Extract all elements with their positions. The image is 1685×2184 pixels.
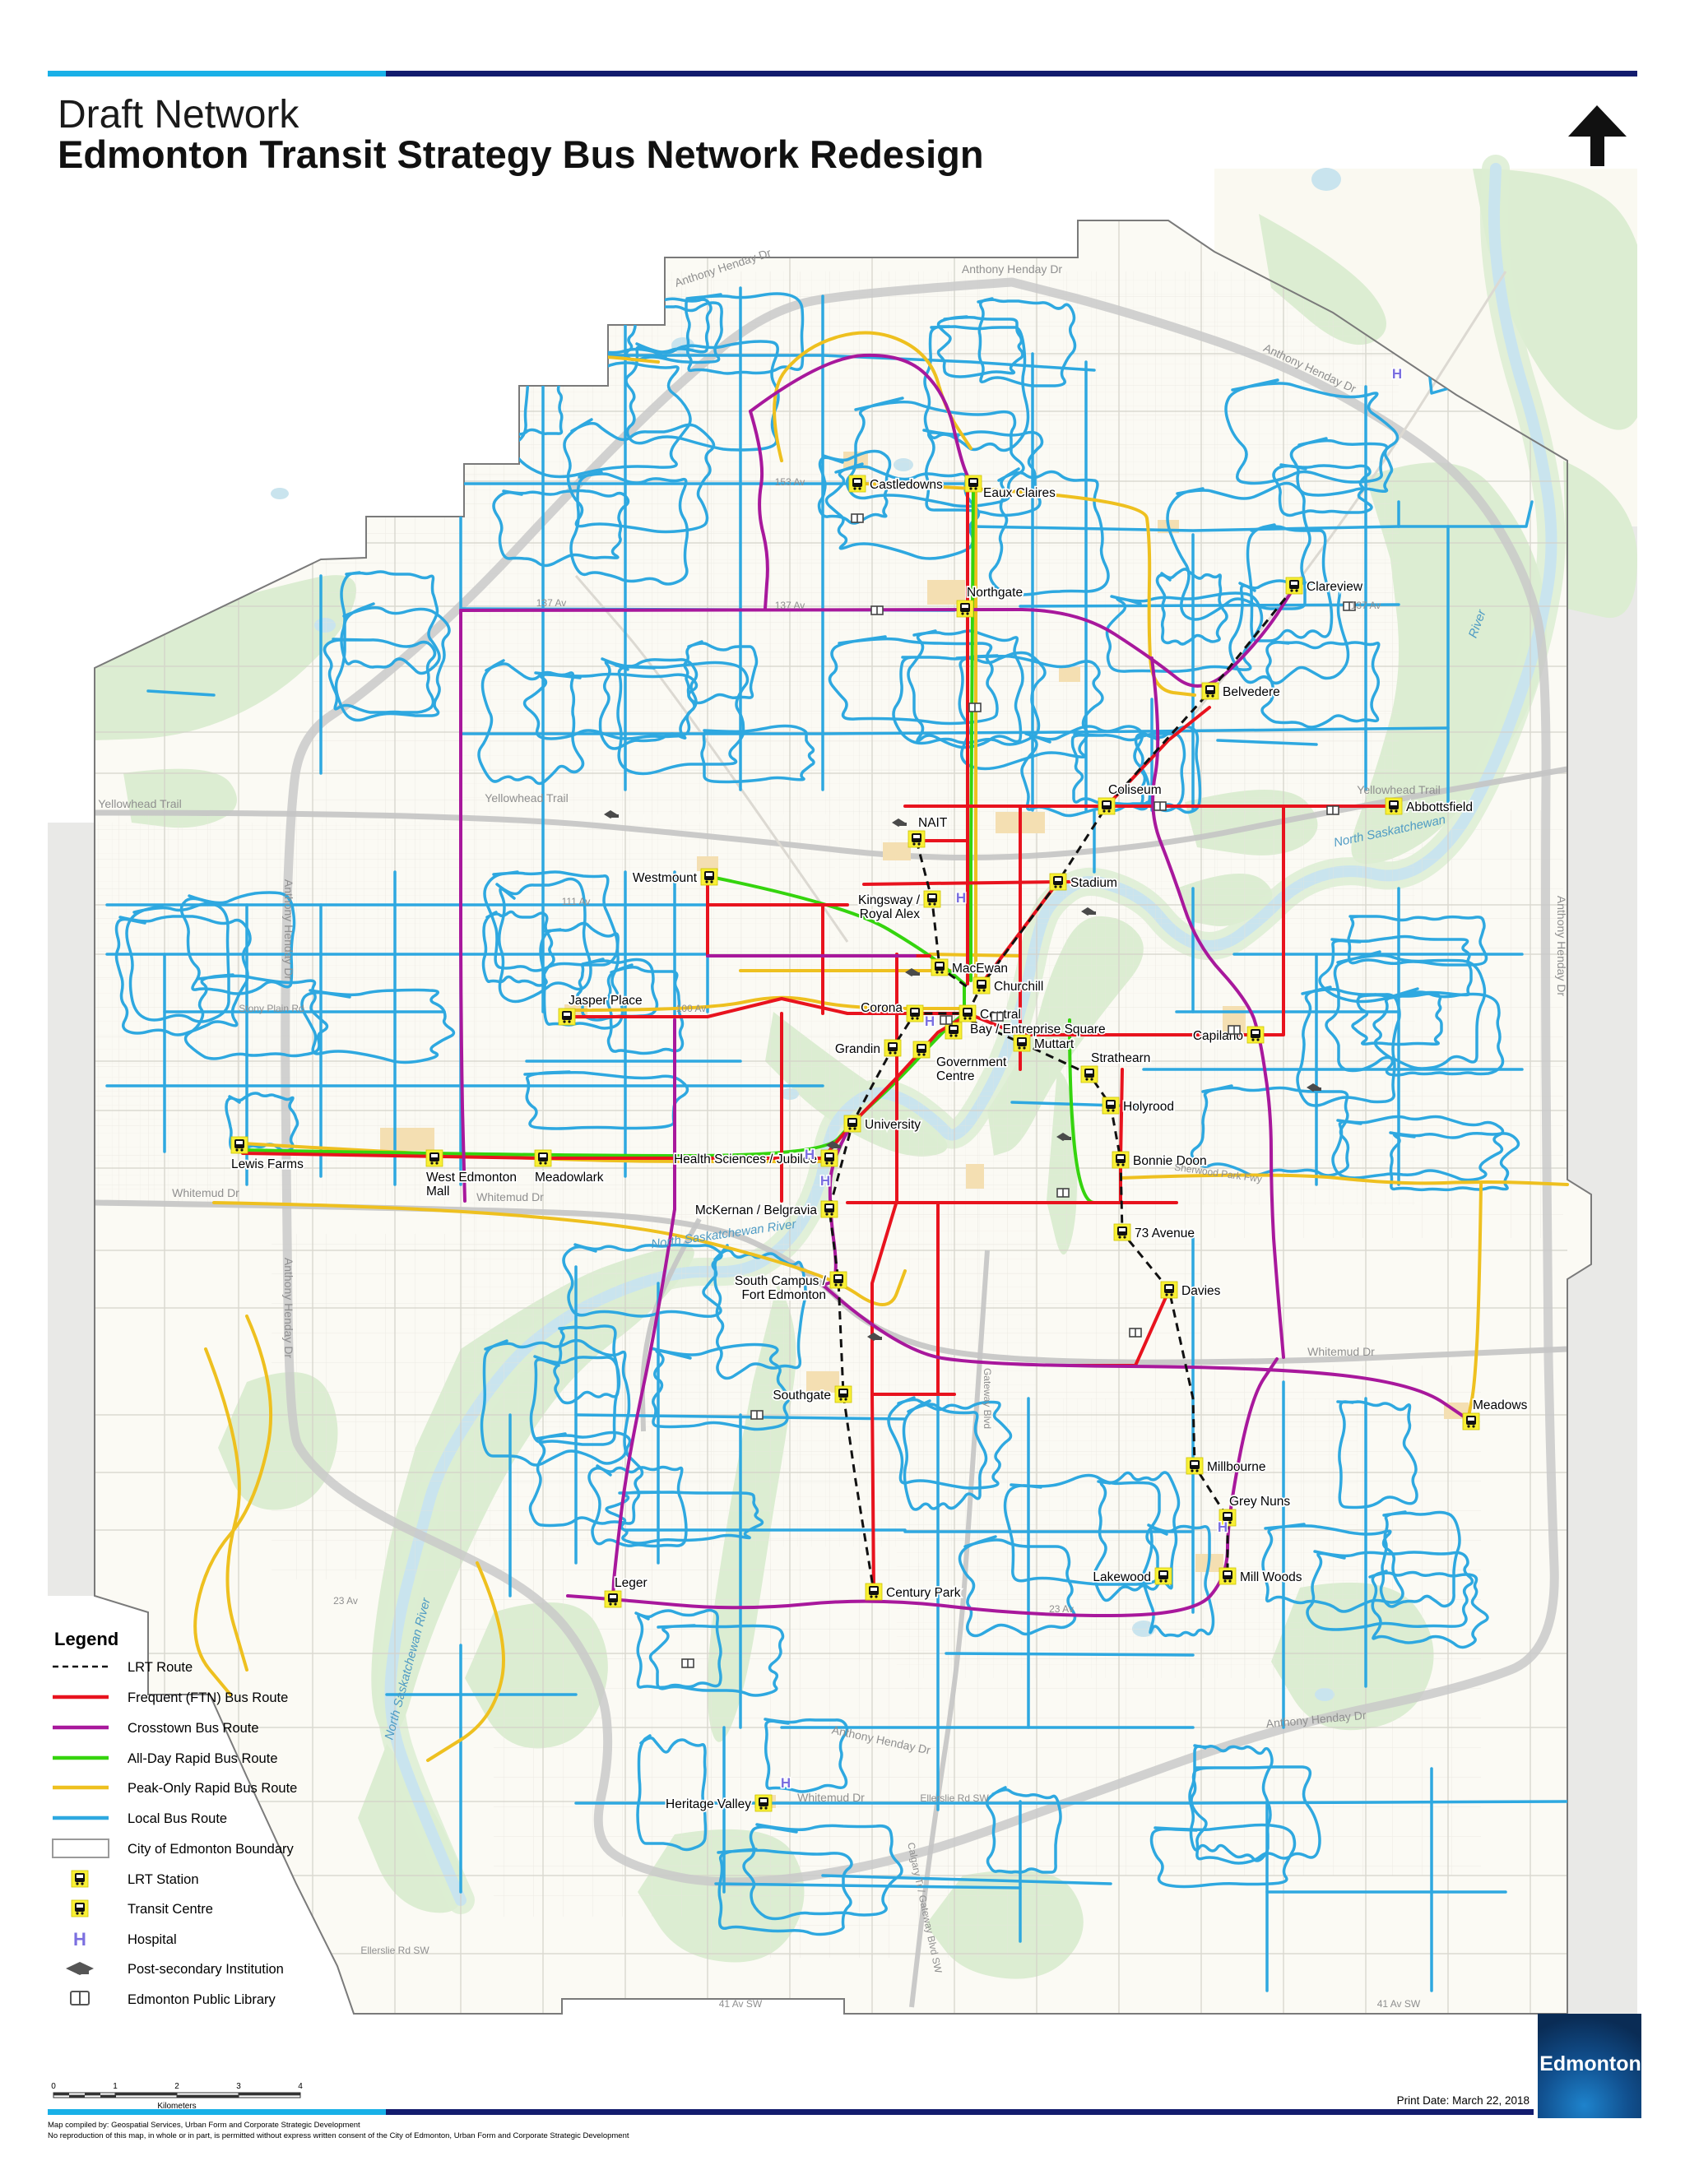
svg-text:0: 0 bbox=[51, 2082, 56, 2091]
svg-text:Meadowlark: Meadowlark bbox=[535, 1171, 604, 1185]
svg-text:4: 4 bbox=[298, 2082, 303, 2091]
svg-text:Southgate: Southgate bbox=[773, 1389, 831, 1403]
svg-text:H: H bbox=[805, 1147, 815, 1162]
svg-text:NAIT: NAIT bbox=[918, 816, 948, 830]
svg-text:Meadows: Meadows bbox=[1473, 1398, 1528, 1412]
svg-text:73 Avenue: 73 Avenue bbox=[1135, 1226, 1195, 1240]
svg-text:H: H bbox=[820, 1173, 830, 1189]
svg-text:Leger: Leger bbox=[615, 1576, 648, 1590]
svg-text:All-Day Rapid Bus Route: All-Day Rapid Bus Route bbox=[128, 1751, 278, 1766]
svg-text:Yellowhead Trail: Yellowhead Trail bbox=[1357, 783, 1440, 796]
svg-text:Gateway Blvd: Gateway Blvd bbox=[982, 1368, 993, 1429]
svg-text:Edmonton Transit Strategy Bus: Edmonton Transit Strategy Bus Network Re… bbox=[58, 132, 984, 176]
svg-text:Kingsway /Royal Alex: Kingsway /Royal Alex bbox=[858, 893, 921, 921]
svg-text:Edmonton Public Library: Edmonton Public Library bbox=[128, 1992, 276, 2007]
svg-text:Draft Network: Draft Network bbox=[58, 93, 299, 137]
svg-text:3: 3 bbox=[236, 2082, 241, 2091]
svg-text:Whitemud Dr: Whitemud Dr bbox=[1307, 1345, 1375, 1358]
svg-text:H: H bbox=[1218, 1519, 1228, 1535]
svg-text:Ellerslie Rd SW: Ellerslie Rd SW bbox=[920, 1792, 989, 1804]
svg-text:Stadium: Stadium bbox=[1070, 876, 1117, 890]
svg-text:LRT Route: LRT Route bbox=[128, 1660, 193, 1675]
svg-text:Anthony Henday Dr: Anthony Henday Dr bbox=[1555, 896, 1568, 997]
svg-text:Northgate: Northgate bbox=[967, 586, 1023, 600]
svg-text:137 Av: 137 Av bbox=[536, 597, 566, 609]
svg-text:Edmonton: Edmonton bbox=[1539, 2052, 1641, 2075]
svg-text:Lewis Farms: Lewis Farms bbox=[231, 1157, 304, 1171]
svg-text:Legend: Legend bbox=[54, 1629, 118, 1649]
svg-text:Local Bus Route: Local Bus Route bbox=[128, 1811, 227, 1826]
svg-text:Jasper Place: Jasper Place bbox=[569, 994, 643, 1008]
svg-text:Peak-Only Rapid Bus Route: Peak-Only Rapid Bus Route bbox=[128, 1781, 297, 1796]
svg-text:Abbottsfield: Abbottsfield bbox=[1406, 800, 1473, 814]
svg-text:LRT Station: LRT Station bbox=[128, 1872, 199, 1887]
svg-text:H: H bbox=[781, 1775, 791, 1791]
svg-text:Strathearn: Strathearn bbox=[1091, 1051, 1150, 1065]
svg-text:Anthony Henday Dr: Anthony Henday Dr bbox=[282, 879, 295, 981]
svg-text:2: 2 bbox=[174, 2082, 179, 2091]
svg-text:137 Av: 137 Av bbox=[1351, 600, 1381, 611]
svg-text:Lakewood: Lakewood bbox=[1093, 1570, 1151, 1584]
svg-text:Churchill: Churchill bbox=[994, 980, 1043, 994]
svg-text:Grandin: Grandin bbox=[835, 1042, 880, 1056]
svg-text:Anthony Henday Dr: Anthony Henday Dr bbox=[282, 1258, 295, 1359]
svg-text:Yellowhead Trail: Yellowhead Trail bbox=[485, 791, 568, 805]
svg-text:Belvedere: Belvedere bbox=[1223, 685, 1280, 699]
svg-text:Map compiled by: Geospatial Se: Map compiled by: Geospatial Services, Ur… bbox=[48, 2121, 360, 2130]
svg-text:MacEwan: MacEwan bbox=[952, 962, 1008, 976]
svg-text:41 Av SW: 41 Av SW bbox=[1377, 1998, 1421, 2010]
svg-text:Grey Nuns: Grey Nuns bbox=[1229, 1495, 1290, 1509]
svg-text:Yellowhead Trail: Yellowhead Trail bbox=[98, 797, 181, 810]
svg-text:41 Av SW: 41 Av SW bbox=[719, 1998, 763, 2010]
svg-text:No reproduction of this map, i: No reproduction of this map, in whole or… bbox=[48, 2131, 629, 2140]
svg-text:1: 1 bbox=[113, 2082, 118, 2091]
svg-text:137 Av: 137 Av bbox=[775, 600, 805, 611]
svg-text:Millbourne: Millbourne bbox=[1207, 1460, 1266, 1474]
svg-text:Whitemud Dr: Whitemud Dr bbox=[172, 1186, 239, 1199]
svg-text:100 Av: 100 Av bbox=[676, 1003, 706, 1014]
svg-text:Mill Woods: Mill Woods bbox=[1240, 1570, 1302, 1584]
svg-text:H: H bbox=[956, 890, 966, 906]
svg-text:H: H bbox=[73, 1929, 86, 1950]
svg-text:111 Av: 111 Av bbox=[562, 896, 591, 907]
svg-text:Westmount: Westmount bbox=[633, 871, 698, 885]
svg-text:Whitemud Dr: Whitemud Dr bbox=[797, 1791, 865, 1804]
svg-text:Post-secondary Institution: Post-secondary Institution bbox=[128, 1962, 284, 1977]
svg-text:Heritage Valley: Heritage Valley bbox=[666, 1797, 751, 1811]
svg-text:153 Av: 153 Av bbox=[775, 476, 805, 488]
svg-text:H: H bbox=[1392, 366, 1402, 382]
svg-text:Muttart: Muttart bbox=[1034, 1037, 1075, 1051]
svg-text:Frequent (FTN) Bus Route: Frequent (FTN) Bus Route bbox=[128, 1690, 288, 1705]
svg-text:23 Av: 23 Av bbox=[1049, 1603, 1074, 1615]
svg-text:Health Sciences / Jubilee: Health Sciences / Jubilee bbox=[674, 1152, 817, 1166]
svg-text:Eaux Claires: Eaux Claires bbox=[983, 486, 1056, 500]
svg-text:Century Park: Century Park bbox=[886, 1586, 961, 1600]
svg-text:Corona: Corona bbox=[861, 1001, 903, 1015]
svg-text:Holyrood: Holyrood bbox=[1123, 1100, 1174, 1114]
svg-text:Print Date: March 22, 2018: Print Date: March 22, 2018 bbox=[1397, 2094, 1529, 2107]
svg-text:City of Edmonton Boundary: City of Edmonton Boundary bbox=[128, 1842, 295, 1857]
svg-text:Clareview: Clareview bbox=[1307, 580, 1363, 594]
svg-text:Hospital: Hospital bbox=[128, 1932, 177, 1947]
svg-text:South Campus /Fort Edmonton: South Campus /Fort Edmonton bbox=[735, 1274, 827, 1302]
svg-text:H: H bbox=[925, 1013, 935, 1029]
svg-text:Stony Plain Rd: Stony Plain Rd bbox=[239, 1003, 304, 1014]
svg-text:Castledowns: Castledowns bbox=[870, 478, 943, 492]
svg-text:Coliseum: Coliseum bbox=[1108, 783, 1162, 797]
svg-text:Bay / Entreprise Square: Bay / Entreprise Square bbox=[970, 1022, 1106, 1036]
svg-text:Anthony Henday Dr: Anthony Henday Dr bbox=[962, 262, 1063, 276]
svg-text:McKernan / Belgravia: McKernan / Belgravia bbox=[695, 1203, 818, 1217]
svg-text:Davies: Davies bbox=[1181, 1284, 1221, 1298]
svg-text:Transit Centre: Transit Centre bbox=[128, 1902, 213, 1917]
svg-text:23 Av: 23 Av bbox=[333, 1595, 358, 1607]
svg-text:University: University bbox=[865, 1118, 921, 1132]
svg-text:Whitemud Dr: Whitemud Dr bbox=[476, 1190, 544, 1203]
svg-text:Crosstown Bus Route: Crosstown Bus Route bbox=[128, 1721, 259, 1736]
